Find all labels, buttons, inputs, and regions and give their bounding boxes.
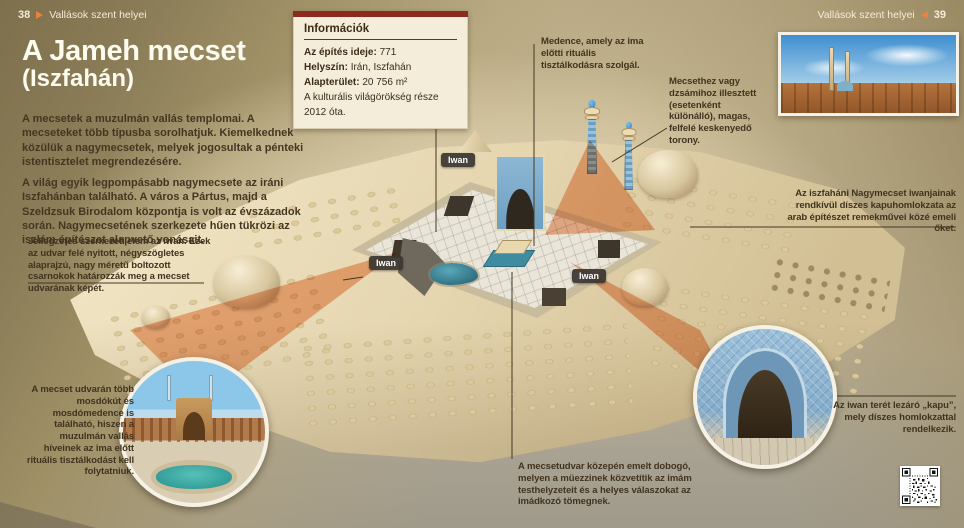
info-row: Helyszín: Irán, Iszfahán: [304, 60, 457, 75]
article-title: A Jameh mecset (Iszfahán): [22, 36, 246, 92]
title-line2: (Iszfahán): [22, 67, 246, 92]
photo-minaret: [167, 375, 171, 401]
info-label: Helyszín:: [304, 62, 348, 73]
qr-code: [900, 466, 940, 506]
info-row: Az építés ideje: 771: [304, 45, 457, 60]
info-value: 20 756 m²: [362, 77, 407, 88]
title-line1: A Jameh mecset: [22, 36, 246, 66]
iwan-portal-photo-inset: [693, 325, 837, 469]
section-title-left: Vallások szent helyei: [49, 9, 146, 21]
iwan-label: Iwan: [369, 256, 403, 270]
photo-iwan-facade: [176, 398, 212, 440]
iwan-label: Iwan: [572, 269, 606, 283]
info-box-title: Információk: [304, 23, 457, 40]
callout-minaret: Mecsethez vagy dzsámihoz illesztett (ese…: [669, 76, 769, 147]
info-row: Alapterület: 20 756 m²: [304, 75, 457, 90]
book-spread: 38 Vallások szent helyei Vallások szent …: [0, 0, 964, 528]
qr-code-graphic: [902, 468, 938, 504]
info-label: Az építés ideje:: [304, 47, 377, 58]
callout-gate: Az iwan terét lezáró „kapu”, mely díszes…: [833, 400, 956, 435]
callout-platform: A mecsetudvar közepén emelt dobogó, mely…: [518, 461, 716, 508]
courtyard-photo-inset: [119, 357, 269, 507]
arrow-left-icon: [921, 11, 928, 19]
iwan-label: Iwan: [441, 153, 475, 167]
intro-text: A mecsetek a muzulmán vallás templomai. …: [22, 112, 308, 255]
section-title-right: Vallások szent helyei: [817, 9, 914, 21]
info-footnote: A kulturális világörökség része 2012 óta…: [304, 91, 457, 120]
info-value: 771: [380, 47, 397, 58]
page-number-left: 38: [18, 9, 30, 21]
city-skyline-photo: [778, 32, 959, 116]
portal-ground: [697, 438, 833, 465]
photo-dome: [837, 81, 853, 91]
callout-pool: Medence, amely az ima előtti rituális ti…: [541, 36, 659, 71]
photo-minaret: [829, 47, 834, 91]
photo-fountain-pool: [151, 460, 237, 494]
info-box: Információk Az építés ideje: 771 Helyszí…: [293, 11, 468, 129]
callout-washing: A mecset udvarán több mosdókút és mosdóm…: [22, 384, 134, 478]
callout-iwan-structure: Jellegzetes szerkezeti elem az iwan. Eze…: [28, 236, 213, 295]
arrow-right-icon: [36, 11, 43, 19]
header-right: Vallások szent helyei 39: [817, 9, 946, 21]
page-number-right: 39: [934, 9, 946, 21]
photo-city-strip: [781, 83, 956, 113]
info-label: Alapterület:: [304, 77, 360, 88]
info-value: Irán, Iszfahán: [351, 62, 412, 73]
intro-paragraph: A mecsetek a muzulmán vallás templomai. …: [22, 112, 308, 169]
callout-iwan-facade: Az iszfaháni Nagymecset iwanjainak rendk…: [784, 188, 956, 235]
header-left: 38 Vallások szent helyei: [18, 9, 147, 21]
